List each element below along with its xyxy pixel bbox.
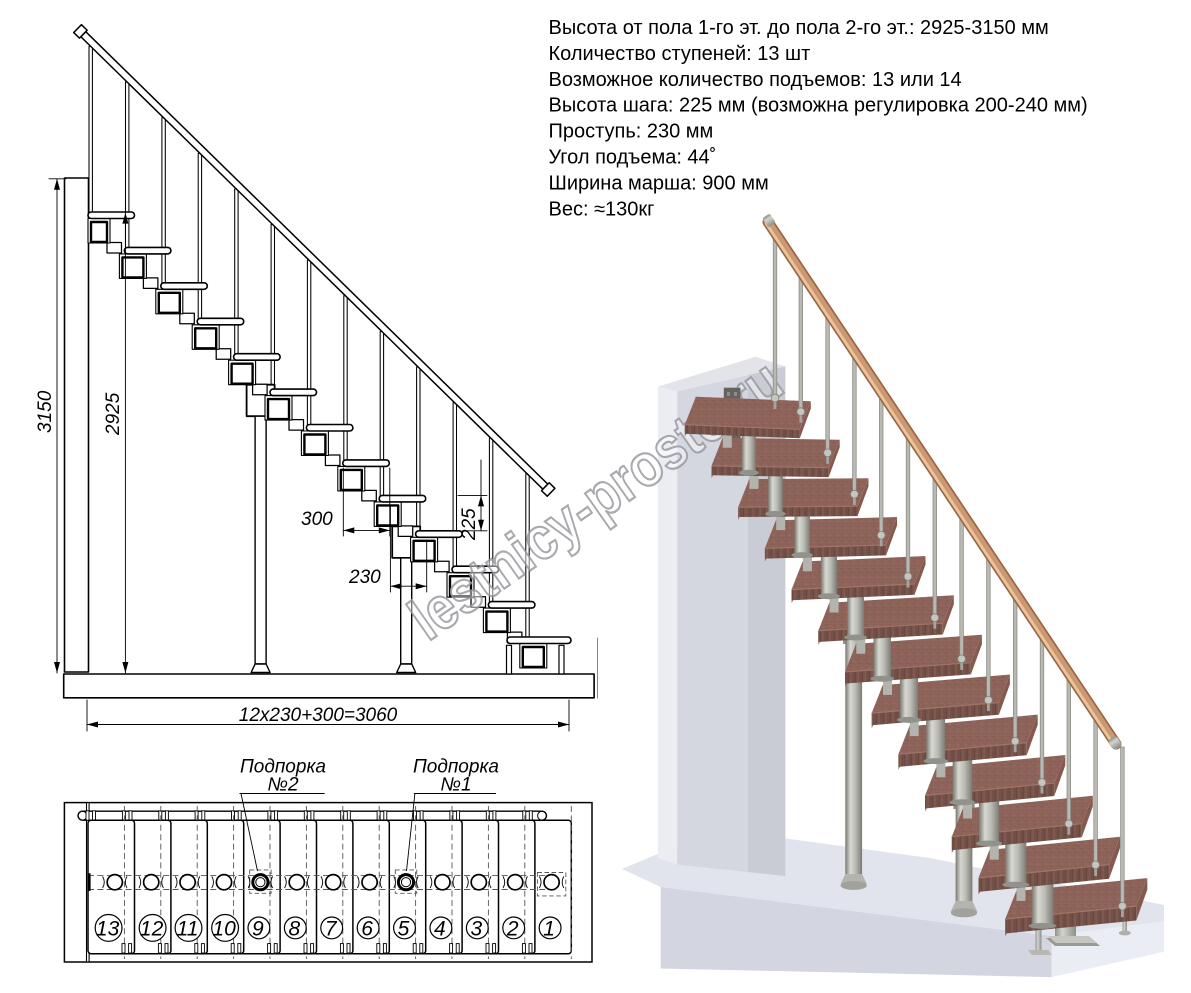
- svg-text:10: 10: [212, 917, 236, 940]
- svg-text:Возможное количество подъемов:: Возможное количество подъемов: 13 или 14: [549, 69, 962, 91]
- svg-text:3150: 3150: [35, 390, 56, 433]
- svg-text:225: 225: [459, 508, 480, 541]
- svg-text:3: 3: [470, 917, 482, 940]
- svg-text:Высота шага: 225 мм (возможна: Высота шага: 225 мм (возможна регулировк…: [549, 95, 1088, 117]
- svg-text:12: 12: [140, 917, 164, 940]
- svg-text:2: 2: [506, 917, 519, 940]
- svg-text:Количество ступеней: 13 шт: Количество ступеней: 13 шт: [549, 43, 811, 65]
- svg-text:9: 9: [252, 917, 264, 940]
- svg-text:230: 230: [348, 567, 381, 588]
- svg-text:4: 4: [434, 917, 446, 940]
- svg-text:13: 13: [96, 917, 120, 940]
- svg-text:№1: №1: [440, 775, 471, 796]
- svg-text:№2: №2: [267, 775, 299, 796]
- svg-text:2925: 2925: [103, 392, 124, 436]
- svg-text:Проступь: 230 мм: Проступь: 230 мм: [549, 121, 714, 143]
- svg-text:Угол подъема: 44˚: Угол подъема: 44˚: [549, 147, 717, 169]
- svg-text:Высота от пола 1-го эт. до пол: Высота от пола 1-го эт. до пола 2-го эт.…: [549, 17, 1049, 39]
- svg-text:6: 6: [361, 917, 373, 940]
- svg-text:1: 1: [543, 917, 555, 940]
- svg-text:8: 8: [288, 917, 300, 940]
- svg-text:7: 7: [325, 917, 338, 940]
- svg-text:5: 5: [398, 917, 410, 940]
- svg-text:12x230+300=3060: 12x230+300=3060: [239, 705, 398, 726]
- svg-text:300: 300: [301, 509, 333, 530]
- svg-text:11: 11: [177, 917, 199, 940]
- svg-text:Вес: ≈130кг: Вес: ≈130кг: [549, 198, 655, 220]
- svg-text:Ширина марша: 900 мм: Ширина марша: 900 мм: [549, 172, 769, 194]
